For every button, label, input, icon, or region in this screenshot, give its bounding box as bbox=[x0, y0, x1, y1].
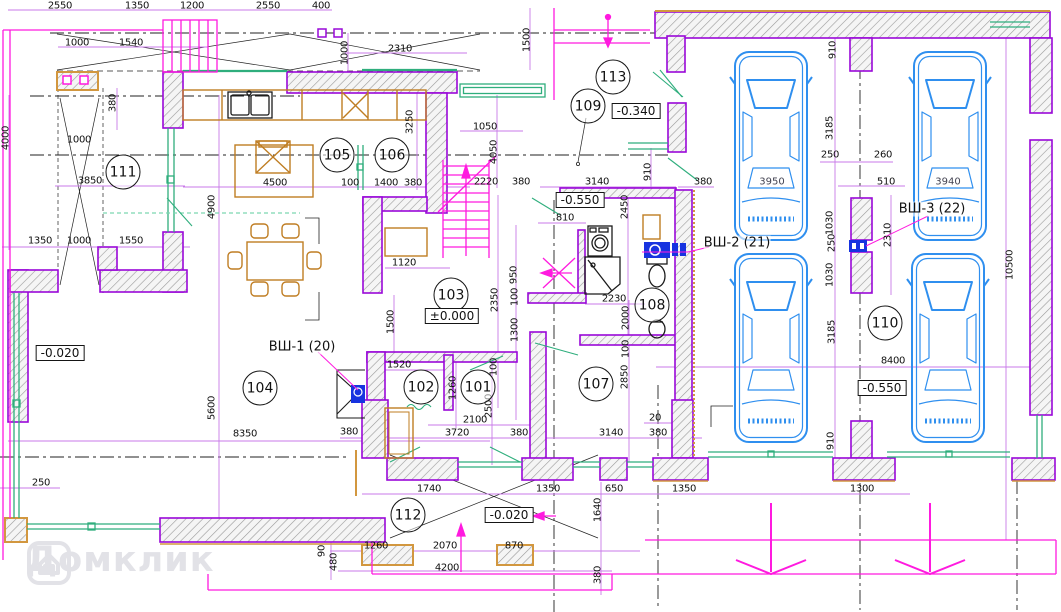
vent-shaft-vsh3 bbox=[849, 240, 867, 252]
vent-shaft-vsh1 bbox=[351, 385, 365, 403]
car-bottom-left bbox=[730, 254, 812, 442]
pergola bbox=[163, 20, 217, 72]
vsh3-leader bbox=[866, 216, 928, 246]
understairs-cabinet bbox=[385, 228, 427, 256]
washing-machine bbox=[588, 226, 612, 256]
dining-table bbox=[228, 224, 321, 296]
floorplan-linework bbox=[0, 0, 1061, 612]
car-bottom-right bbox=[907, 254, 989, 442]
garage-door-arrow-left bbox=[736, 503, 806, 574]
vsh1-leader bbox=[318, 352, 358, 390]
shower-door-swing bbox=[541, 258, 575, 288]
orange-piers bbox=[5, 72, 533, 565]
wardrobe bbox=[385, 408, 413, 458]
car-top-right bbox=[909, 52, 991, 240]
bath-cabinet bbox=[643, 215, 660, 239]
floor-plan-canvas: Домклик bbox=[0, 0, 1061, 612]
entry-arrow-bottom bbox=[457, 524, 465, 572]
car-top-left bbox=[730, 52, 812, 240]
kitchen-island bbox=[235, 141, 313, 197]
toilet bbox=[647, 255, 667, 287]
furniture bbox=[183, 90, 660, 458]
kitchen-sink bbox=[228, 91, 272, 118]
garage-door-arrow-right bbox=[895, 503, 965, 574]
walls bbox=[8, 12, 1055, 542]
shower bbox=[585, 257, 620, 294]
entry-arrow-top bbox=[604, 15, 612, 48]
axis-grid bbox=[0, 33, 1017, 612]
